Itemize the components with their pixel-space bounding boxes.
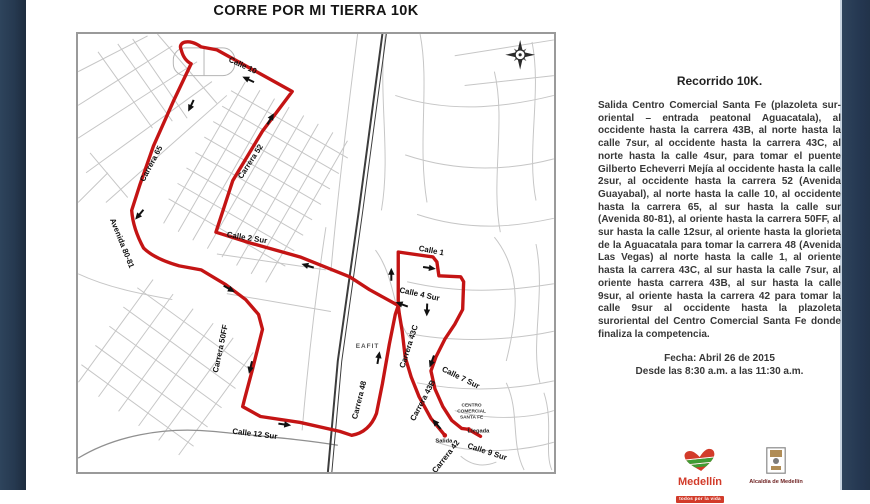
start-label: Salida [435, 438, 453, 444]
route-description-text: Salida Centro Comercial Santa Fe (plazol… [598, 100, 841, 341]
event-date-line1: Fecha: Abril 26 de 2015 [598, 352, 841, 365]
mall-label-line2: COMERCIAL [457, 409, 486, 415]
street-label-carrera48: Carrera 48 [350, 379, 368, 420]
alcaldia-logo: Alcaldía de Medellín [744, 447, 808, 486]
street-label-calle9sur: Calle 9 Sur [466, 441, 508, 462]
route-map-canvas: Calle 10 Carrera 52 Carrera 65 Avenida 8… [78, 34, 554, 472]
mall-label: CENTRO COMERCIAL SANTA FE [457, 403, 486, 421]
panel-heading: Recorrido 10K. [598, 74, 841, 88]
alcaldia-crest-icon [766, 447, 786, 474]
event-date: Fecha: Abril 26 de 2015 Desde las 8:30 a… [598, 352, 841, 378]
street-label-avenida-80-81: Avenida 80-81 [108, 217, 136, 270]
start-point [443, 433, 448, 438]
route-description-panel: Recorrido 10K. Salida Centro Comercial S… [598, 74, 841, 378]
street-label-calle10: Calle 10 [227, 55, 258, 76]
compass-rose-icon [505, 40, 535, 70]
river-line [78, 430, 338, 458]
finish-label: Llegada [468, 428, 490, 434]
event-date-line2: Desde las 8:30 a.m. a las 11:30 a.m. [598, 365, 841, 378]
slide: { "slide": { "title": "CORRE POR MI TIER… [0, 0, 870, 490]
poi-label-eafit: EAFIT [356, 343, 380, 350]
right-navy-bar [840, 0, 870, 490]
street-label-carrera50ff: Carrera 50FF [211, 324, 230, 374]
street-label-calle7sur: Calle 7 Sur [440, 365, 481, 391]
street-label-calle12sur: Calle 12 Sur [232, 427, 278, 441]
medellin-wordmark: Medellín [660, 477, 740, 488]
medellin-heart-icon [682, 448, 718, 472]
route-map: Calle 10 Carrera 52 Carrera 65 Avenida 8… [76, 32, 556, 474]
medellin-logo: Medellín todos por la vida [660, 448, 740, 504]
medellin-tagline: todos por la vida [676, 496, 724, 504]
mall-label-line3: SANTA FE [460, 414, 483, 420]
left-navy-bar [0, 0, 26, 490]
street-label-calle4sur: Calle 4 Sur [399, 286, 441, 303]
alcaldia-label: Alcaldía de Medellín [744, 480, 808, 486]
page-title: CORRE POR MI TIERRA 10K [76, 3, 556, 19]
mall-label-line1: CENTRO [462, 403, 482, 409]
race-route [132, 42, 481, 437]
